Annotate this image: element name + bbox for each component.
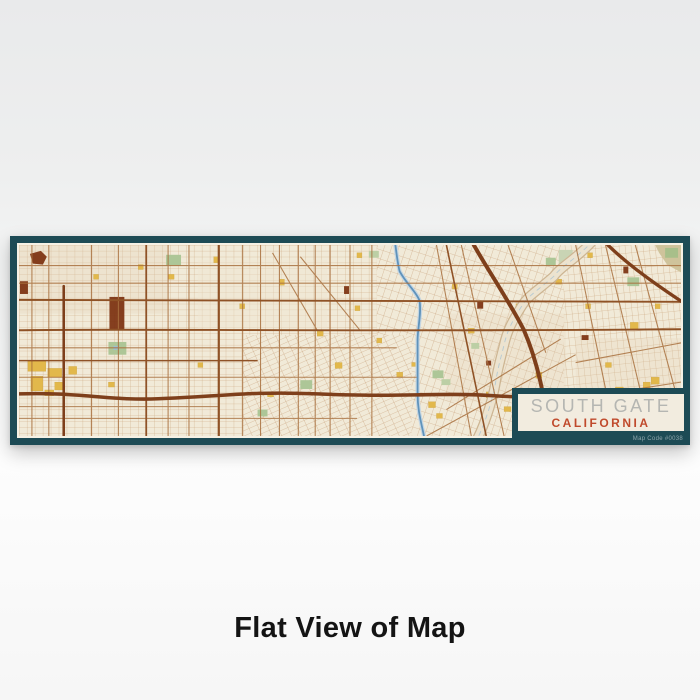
state-name: CALIFORNIA xyxy=(552,417,651,429)
product-photo-scene: SOUTH GATE CALIFORNIA Map Code #0038 Fla… xyxy=(0,0,700,700)
map-title-plate: SOUTH GATE CALIFORNIA Map Code #0038 xyxy=(512,388,690,445)
map-code-text: Map Code #0038 xyxy=(633,436,683,442)
city-name: SOUTH GATE xyxy=(531,397,672,415)
map-title-card: SOUTH GATE CALIFORNIA xyxy=(518,394,684,431)
view-caption: Flat View of Map xyxy=(0,612,700,645)
map-print: SOUTH GATE CALIFORNIA Map Code #0038 xyxy=(10,236,690,445)
